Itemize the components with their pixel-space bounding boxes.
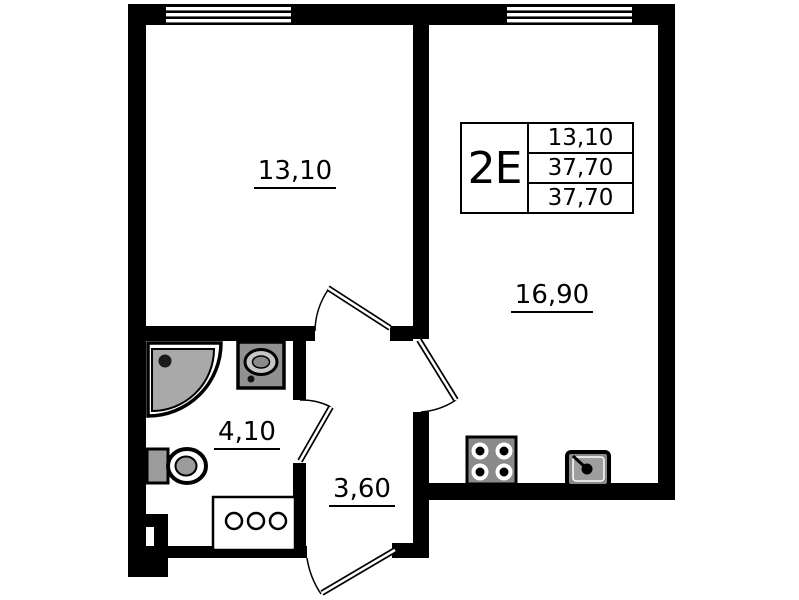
unit-area-row: 37,70: [529, 184, 632, 212]
shower-drain: [159, 355, 172, 368]
toilet: [147, 449, 206, 483]
corner-shower: [148, 343, 221, 416]
doors: [300, 288, 456, 594]
floor-plan: 13,10 16,90 4,10 3,60 2E 13,10 37,70 37,…: [0, 0, 799, 600]
wall-bedroom-bottom-left: [128, 326, 315, 341]
door-bedroom: [315, 288, 390, 331]
unit-type-code: 2E: [462, 124, 529, 212]
wall-middle-lower: [413, 412, 429, 558]
window-livingroom: [507, 7, 632, 22]
wall-right: [658, 4, 675, 500]
unit-area-row: 37,70: [529, 154, 632, 184]
bathroom-area-value: 4,10: [214, 418, 280, 450]
hallway-area-value: 3,60: [329, 475, 395, 507]
door-bathroom: [300, 400, 331, 461]
wall-bathroom-right-upper: [293, 326, 306, 400]
wall-left: [128, 4, 146, 577]
unit-area-row: 13,10: [529, 124, 632, 154]
unit-info-box: 2E 13,10 37,70 37,70: [460, 122, 634, 214]
wall-livingroom-bottom: [413, 483, 675, 500]
stove-4-burner: [467, 437, 516, 484]
room-label-hallway: 3,60: [321, 475, 403, 507]
room-label-livingroom: 16,90: [502, 281, 602, 313]
wall-entrance-jamb: [392, 543, 429, 558]
floor-plan-drawing: [0, 0, 799, 600]
wall-middle-upper: [413, 25, 429, 339]
door-livingroom: [419, 340, 456, 412]
duct-vertical: [154, 514, 168, 552]
wall-bedroom-bottom-right: [390, 326, 413, 341]
drawer-cabinet: [213, 497, 295, 550]
window-bedroom: [166, 7, 291, 22]
livingroom-area-value: 16,90: [511, 281, 593, 313]
unit-areas: 13,10 37,70 37,70: [529, 124, 632, 212]
washbasin: [238, 342, 284, 388]
bedroom-area-value: 13,10: [254, 157, 336, 189]
room-label-bedroom: 13,10: [245, 157, 345, 189]
room-label-bathroom: 4,10: [207, 418, 287, 450]
door-entrance: [307, 550, 395, 594]
kitchen-sink: [567, 452, 609, 486]
